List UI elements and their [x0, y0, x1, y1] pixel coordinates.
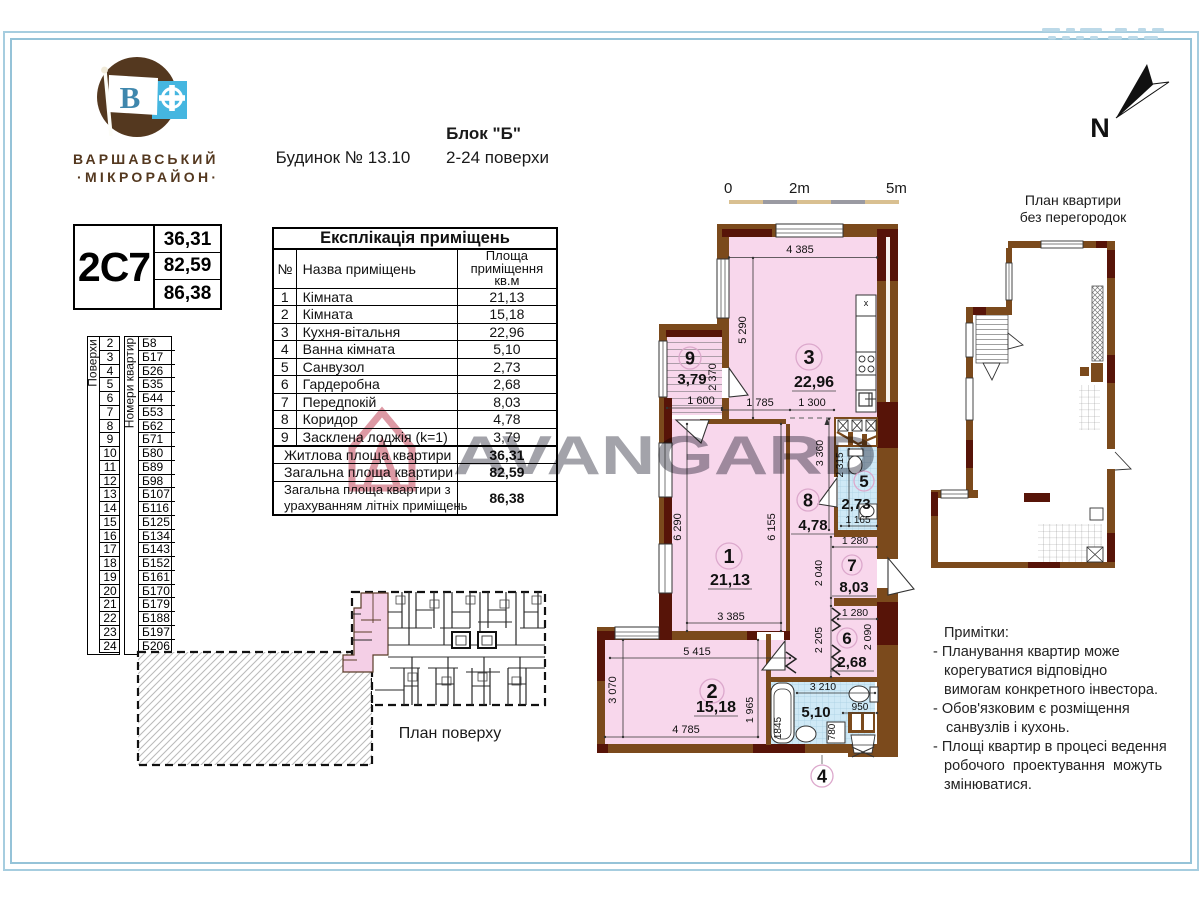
- svg-text:950: 950: [852, 702, 869, 713]
- svg-text:7: 7: [847, 556, 856, 575]
- svg-text:1: 1: [723, 546, 734, 568]
- svg-text:2 205: 2 205: [813, 627, 825, 653]
- svg-text:1845: 1845: [773, 716, 784, 739]
- svg-text:15,18: 15,18: [696, 699, 736, 716]
- svg-text:·МІКРОРАЙОН·: ·МІКРОРАЙОН·: [77, 168, 219, 185]
- svg-text:1 965: 1 965: [744, 697, 756, 723]
- svg-text:4,78: 4,78: [798, 517, 827, 534]
- svg-text:Номери квартир: Номери квартир: [124, 337, 137, 428]
- svg-text:5,10: 5,10: [801, 704, 830, 721]
- svg-text:22,96: 22,96: [794, 374, 834, 391]
- svg-text:1 280: 1 280: [842, 607, 868, 619]
- svg-text:2 370: 2 370: [707, 363, 719, 391]
- svg-text:1 280: 1 280: [842, 535, 868, 547]
- svg-text:ВАРШАВСЬКИЙ: ВАРШАВСЬКИЙ: [73, 150, 219, 167]
- svg-text:3: 3: [803, 347, 814, 369]
- svg-text:4: 4: [817, 766, 827, 786]
- svg-text:AVANGARD: AVANGARD: [453, 424, 877, 486]
- svg-text:780: 780: [827, 723, 838, 740]
- svg-text:1 165: 1 165: [845, 515, 870, 526]
- svg-text:3 210: 3 210: [810, 681, 836, 693]
- svg-text:6 155: 6 155: [766, 513, 778, 541]
- svg-text:5 290: 5 290: [737, 316, 749, 344]
- svg-text:В: В: [120, 80, 141, 115]
- svg-text:3,79: 3,79: [677, 371, 706, 388]
- svg-text:x: x: [864, 298, 869, 308]
- svg-text:4 385: 4 385: [786, 244, 814, 256]
- svg-text:21,13: 21,13: [710, 572, 750, 589]
- svg-text:6 290: 6 290: [672, 513, 684, 541]
- svg-text:Поверхи: Поверхи: [87, 339, 99, 386]
- svg-text:8,03: 8,03: [839, 579, 868, 596]
- svg-text:2 090: 2 090: [862, 624, 874, 650]
- svg-text:2,68: 2,68: [837, 654, 866, 671]
- svg-text:3 385: 3 385: [717, 611, 745, 623]
- svg-text:N: N: [1090, 113, 1110, 143]
- svg-text:5 415: 5 415: [683, 646, 711, 658]
- svg-text:6: 6: [842, 629, 851, 648]
- svg-text:4 785: 4 785: [672, 724, 700, 736]
- svg-text:9: 9: [685, 348, 695, 368]
- svg-text:2 040: 2 040: [813, 560, 825, 586]
